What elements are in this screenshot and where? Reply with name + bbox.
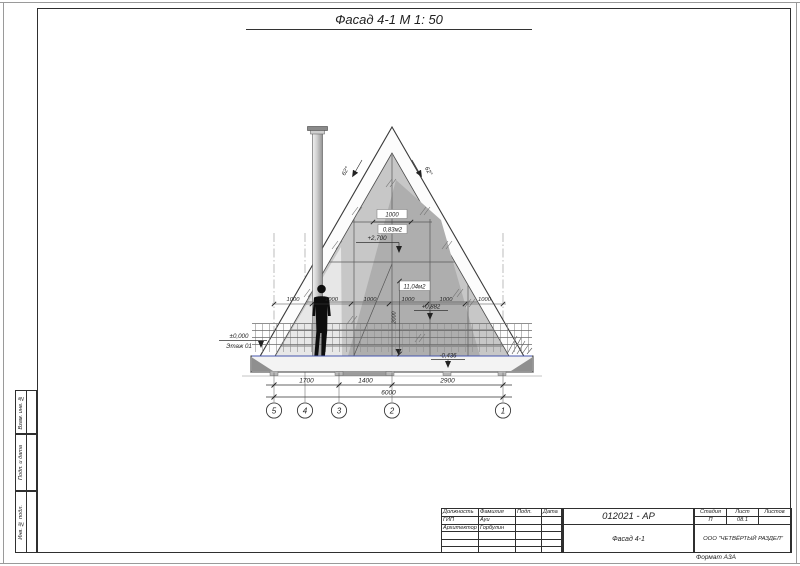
panel-dim-label: 1000 (402, 297, 416, 303)
doc-number: 012021 - АР (564, 509, 693, 525)
company-name: ООО "ЧЕТВЁРТЫЙ РАЗДЕЛ" (695, 525, 791, 553)
grid-bubble-label: 5 (272, 407, 277, 416)
area-small-label: 0,83м2 (383, 228, 403, 234)
panel-dim-label: 1000 (478, 297, 492, 303)
railing (252, 324, 532, 353)
sheet-value: 08.1 (727, 517, 759, 525)
area-large-label: 11,04м2 (403, 285, 426, 291)
row-name: Ауи (479, 517, 516, 525)
level-rail-label: +0,882 (422, 305, 441, 311)
grid-bubble-label: 4 (303, 407, 308, 416)
col-header-sign: Подп. (516, 509, 542, 517)
level-zero-label: ±0,000 (230, 333, 249, 340)
row-sign (516, 525, 542, 533)
drawing-name: Фасад 4-1 (564, 525, 693, 553)
panel-dim-label: 1000 (364, 297, 378, 303)
titleblock-signatures: Должность Фамилия Подп. Дата ГИП Ауи Арх… (441, 508, 563, 553)
level-zero-floor-label: Этаж 01 (226, 343, 252, 350)
chimney-cap (308, 127, 328, 131)
panel-dim-label: 1000 (325, 297, 339, 303)
row-role: Архитектор (442, 525, 479, 533)
row-sign (516, 517, 542, 525)
row-role: ГИП (442, 517, 479, 525)
slope-arrow-left (353, 160, 362, 176)
stage-header: Стадия (695, 509, 727, 517)
titleblock-right: Стадия Лист Листов П 08.1 ООО "ЧЕТВЁРТЫЙ… (694, 508, 792, 553)
grid-bubbles: 5 4 3 2 1 (266, 403, 510, 418)
slope-angle-left-label: 62° (341, 166, 351, 177)
slope-angle-right-label: 62° (423, 166, 433, 177)
level-mid-label: +2,700 (367, 235, 387, 242)
panel-dim-label: 1000 (287, 297, 301, 303)
row-name: Горбулин (479, 525, 516, 533)
foundation-strip (336, 372, 392, 376)
dim-total-label: 6000 (381, 390, 396, 397)
panel-dim-label: 1000 (440, 297, 454, 303)
grid-bubble-label: 3 (337, 407, 342, 416)
sheet-header: Лист (727, 509, 759, 517)
grid-bubble-label: 2 (389, 407, 395, 416)
dim-window-label: 1000 (385, 213, 399, 219)
sheets-value (759, 517, 791, 525)
dim-bottom-label: 2900 (439, 378, 455, 385)
grid-bubble-label: 1 (501, 407, 505, 416)
row-role (442, 547, 479, 553)
row-date (542, 517, 562, 525)
col-header-role: Должность (442, 509, 479, 517)
col-header-name: Фамилия (479, 509, 516, 517)
dim-bottom-label: 1400 (358, 378, 373, 385)
col-header-date: Дата (542, 509, 562, 517)
format-label: Формат А3А (676, 554, 756, 561)
dim-vertical-label: 2000 (392, 310, 398, 324)
row-role (442, 532, 479, 540)
level-ground-label: -0,436 (439, 354, 457, 360)
dim-bottom-label: 1700 (299, 378, 314, 385)
titleblock-middle: 012021 - АР Фасад 4-1 (563, 508, 694, 553)
row-role (442, 540, 479, 548)
row-date (542, 525, 562, 533)
sheets-header: Листов (759, 509, 791, 517)
elevation-drawing: 62° 62° 1000 0,83м2 11,04м2 +2,700 +0,88… (0, 0, 800, 566)
stage-value: П (695, 517, 727, 525)
